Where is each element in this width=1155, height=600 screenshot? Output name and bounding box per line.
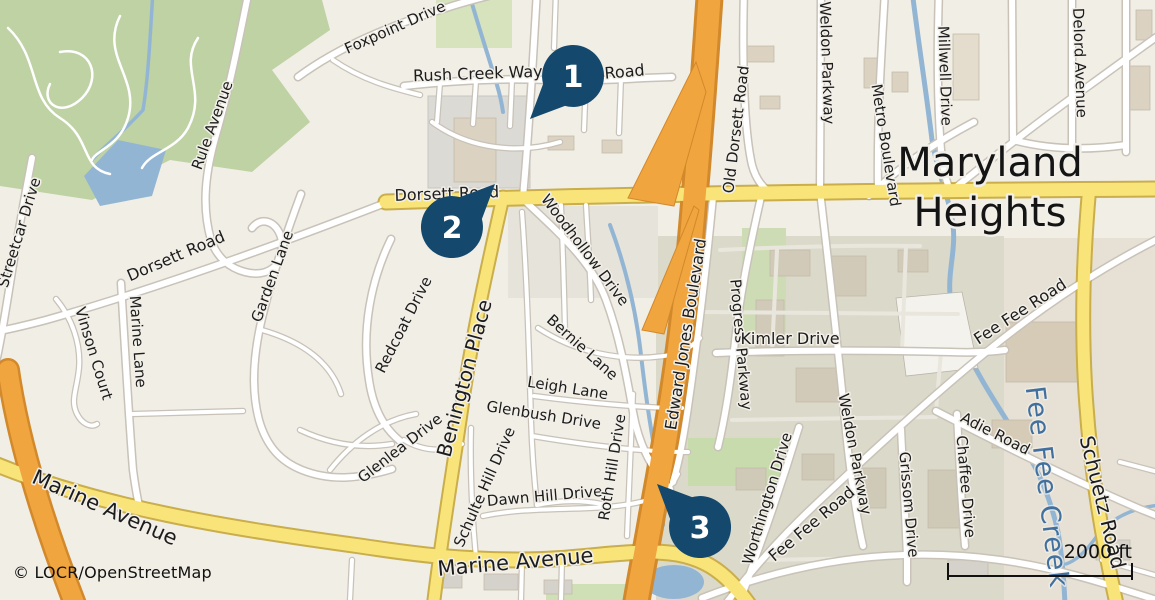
map-canvas[interactable]: Foxpoint Drive Rush Creek Way Road Dorse… [0,0,1155,600]
marker-2-number: 2 [442,211,463,246]
scale-label: 2000 ft [1064,541,1132,563]
city-label-line2: Heights [913,190,1066,236]
road-label-fragment: Road [604,60,646,82]
map-view: Foxpoint Drive Rush Creek Way Road Dorse… [0,0,1155,600]
city-label-line1: Maryland [897,140,1083,186]
marker-1-number: 1 [563,60,584,95]
map-attribution: © LOCR/OpenStreetMap [13,563,212,582]
road-label-millwell-drive: Millwell Drive [934,26,955,127]
road-label-delord-avenue: Delord Avenue [1069,8,1091,119]
road-label-kimler-drive: Kimler Drive [740,329,839,348]
marker-3-number: 3 [690,511,711,546]
